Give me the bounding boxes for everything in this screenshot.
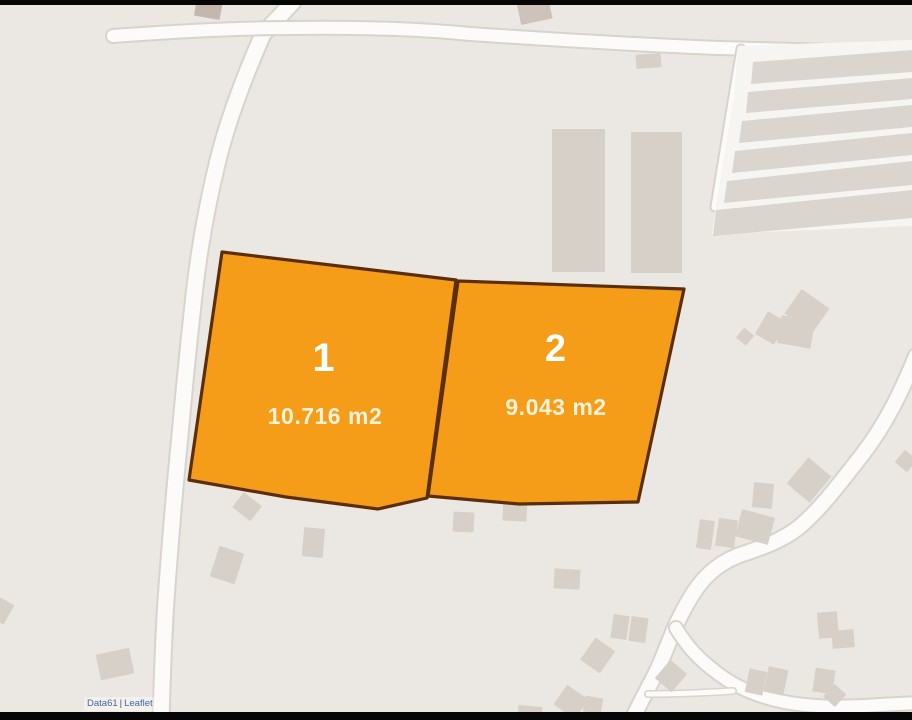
plot-1-polygon[interactable] <box>189 252 456 509</box>
building <box>636 53 662 69</box>
building <box>610 614 629 640</box>
building <box>452 511 474 532</box>
attribution-data61-link[interactable]: Data61 <box>87 698 118 709</box>
building <box>583 696 604 715</box>
attribution-leaflet-link[interactable]: Leaflet <box>124 698 153 709</box>
plot-1-area-label: 10.716 m2 <box>268 403 382 429</box>
road-connector <box>648 691 733 694</box>
map-viewport[interactable]: 1 10.716 m2 2 9.043 m2 Data61|Leaflet <box>0 0 912 720</box>
plot-2-area-label: 9.043 m2 <box>505 394 606 420</box>
building <box>715 518 738 548</box>
plot-1[interactable]: 1 10.716 m2 <box>189 252 456 509</box>
building <box>553 568 580 589</box>
letterbox-bottom <box>0 712 912 720</box>
plot-1-number-label: 1 <box>312 336 335 380</box>
plot-2-number-label: 2 <box>545 328 567 370</box>
building <box>302 527 325 558</box>
building-tall-left <box>552 129 605 272</box>
letterbox-top <box>0 0 912 5</box>
building <box>628 616 648 643</box>
building <box>831 629 854 649</box>
map-attribution: Data61|Leaflet <box>84 697 156 711</box>
plot-2[interactable]: 2 9.043 m2 <box>428 281 684 504</box>
plot-2-polygon[interactable] <box>428 281 684 504</box>
building-tall-right <box>631 132 682 273</box>
building <box>752 482 774 509</box>
map-canvas[interactable]: 1 10.716 m2 2 9.043 m2 <box>0 0 912 720</box>
greenhouse-area <box>712 40 912 236</box>
